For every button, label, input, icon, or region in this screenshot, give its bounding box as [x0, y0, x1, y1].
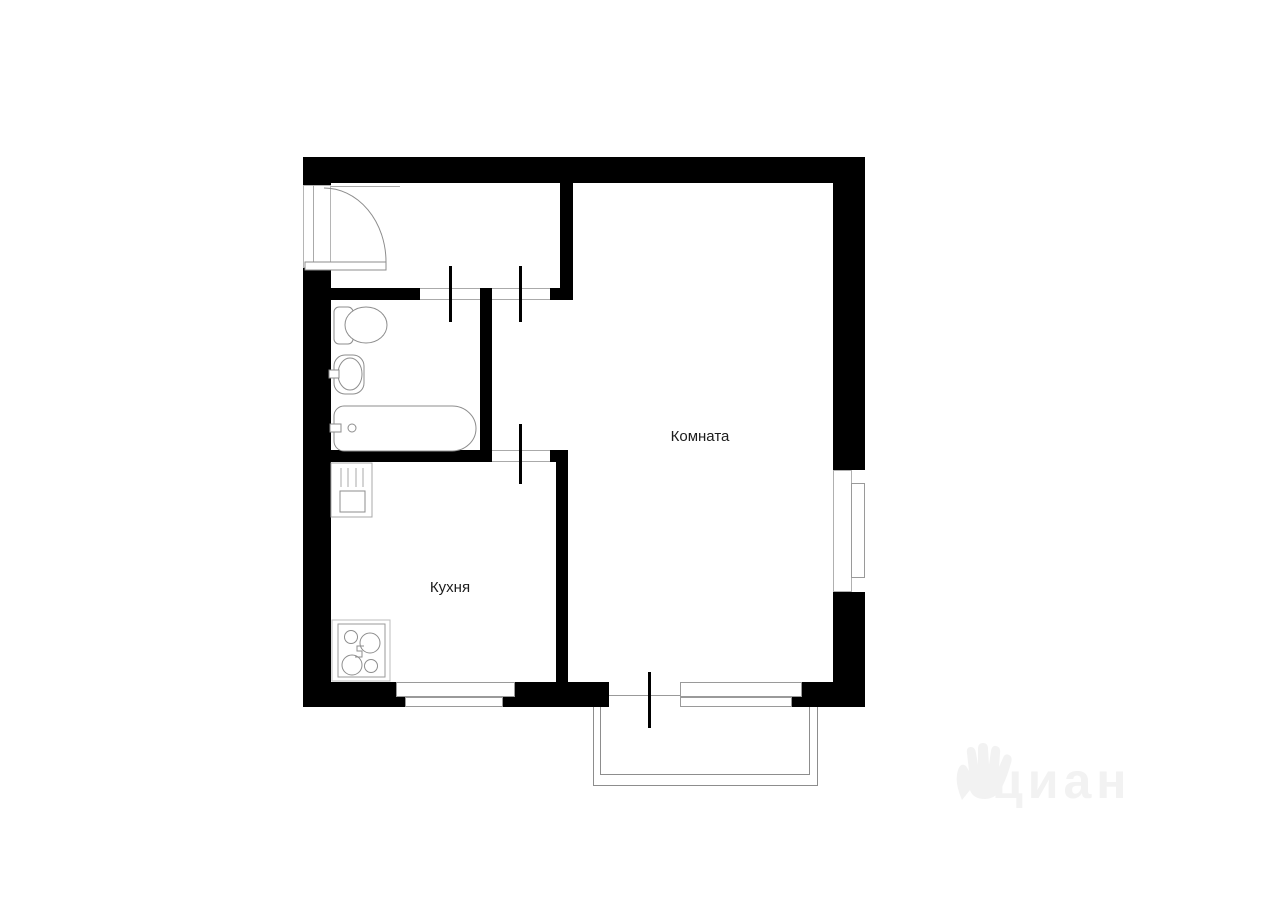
wall-hall-divider-b	[480, 288, 492, 300]
living-room-window-pane	[851, 483, 865, 578]
balcony-window-sill	[680, 697, 792, 707]
kitchen-door-leaf	[519, 424, 522, 484]
wall-top	[303, 157, 865, 183]
wall-hall-divider-a	[331, 288, 420, 300]
entrance-frame-line	[331, 186, 400, 187]
balcony-door-line	[609, 695, 680, 696]
living-room-label: Комната	[640, 428, 760, 445]
wall-bath-bottom	[331, 450, 492, 462]
bathroom-sink-icon	[329, 355, 364, 394]
watermark-text: циан	[992, 752, 1131, 810]
kitchen-label: Кухня	[390, 579, 510, 596]
kitchen-window	[396, 682, 515, 697]
wall-room-upper	[560, 183, 573, 288]
toilet-icon	[334, 307, 387, 344]
wall-right-upper	[833, 183, 865, 470]
floor-plan: Комната Кухня циан	[0, 0, 1280, 905]
wall-bath-bottom-head	[550, 450, 568, 462]
bath-door-leaf	[449, 266, 452, 322]
bathtub-icon	[330, 406, 476, 451]
wall-kitchen-room	[556, 462, 568, 682]
kitchen-sink-icon	[331, 463, 372, 517]
wall-bath-right	[480, 300, 492, 452]
entrance-doorway	[303, 185, 331, 268]
entrance-jamb-line	[313, 185, 314, 268]
corridor-door-leaf	[519, 266, 522, 322]
kitchen-window-sill	[405, 697, 503, 707]
balcony-window	[680, 682, 802, 697]
living-room-window	[833, 470, 852, 592]
wall-hall-divider-c	[550, 288, 573, 300]
balcony-outline-inner	[600, 707, 810, 775]
wall-left	[303, 268, 331, 707]
stove-icon	[332, 620, 390, 681]
